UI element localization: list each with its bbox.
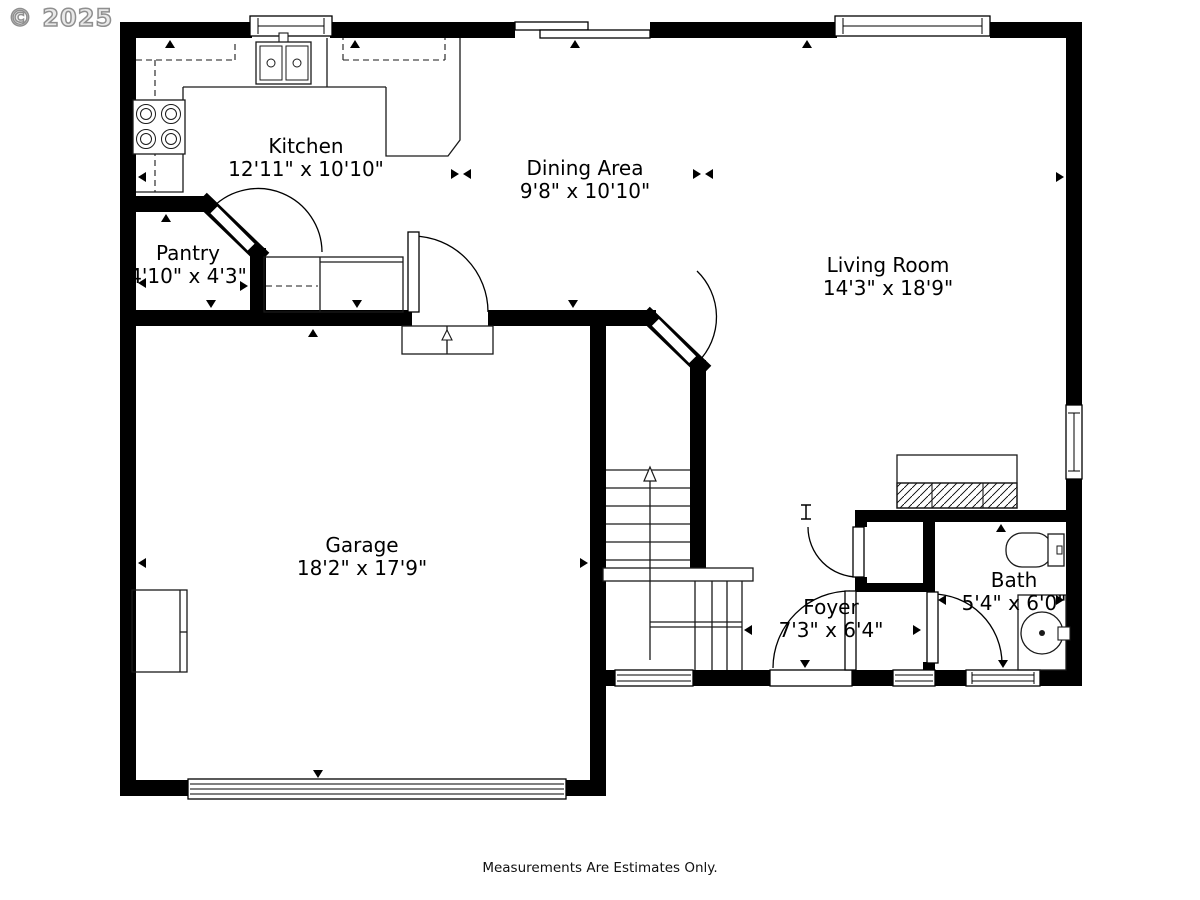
room-label-dining: Dining Area 9'8" x 10'10" [520, 157, 650, 203]
living-room-window [835, 16, 990, 36]
garage-step [402, 326, 493, 354]
right-wall-window [1066, 405, 1082, 479]
room-name: Dining Area [520, 157, 650, 180]
room-label-foyer: Foyer 7'3" x 6'4" [779, 596, 884, 642]
room-name: Pantry [129, 242, 247, 265]
bath-window [966, 670, 1040, 686]
water-heater-icon [132, 590, 187, 672]
garage-door [188, 779, 566, 799]
copyright-watermark: © 2025 [8, 4, 113, 32]
closet-door [808, 527, 864, 577]
ibeam-tick [801, 505, 811, 519]
floor-plan-drawing [0, 0, 1200, 900]
room-label-pantry: Pantry 4'10" x 4'3" [129, 242, 247, 288]
room-label-living: Living Room 14'3" x 18'9" [823, 254, 953, 300]
room-dimensions: 18'2" x 17'9" [297, 557, 427, 580]
stairwell-window [615, 670, 693, 686]
room-dimensions: 9'8" x 10'10" [520, 180, 650, 203]
room-name: Garage [297, 534, 427, 557]
tall-cabinet [386, 38, 460, 156]
staircase [603, 467, 753, 670]
kitchen-garage-door [408, 232, 488, 312]
floor-plan-page: © 2025 Kitchen 12'11" x 10'10" Dining Ar… [0, 0, 1200, 900]
room-dimensions: 7'3" x 6'4" [779, 619, 884, 642]
disclaimer-text: Measurements Are Estimates Only. [482, 860, 717, 876]
kitchen-window [250, 16, 332, 36]
room-name: Living Room [823, 254, 953, 277]
room-dimensions: 12'11" x 10'10" [228, 158, 384, 181]
room-name: Kitchen [228, 135, 384, 158]
kitchen-sink-icon [256, 33, 311, 84]
room-name: Foyer [779, 596, 884, 619]
room-dimensions: 14'3" x 18'9" [823, 277, 953, 300]
room-label-bath: Bath 5'4" x 6'0" [962, 569, 1067, 615]
front-door-threshold [770, 670, 852, 686]
stove-icon [133, 100, 185, 154]
closet-shelves-icon [897, 455, 1017, 508]
room-dimensions: 4'10" x 4'3" [129, 265, 247, 288]
room-label-garage: Garage 18'2" x 17'9" [297, 534, 427, 580]
sliding-door [515, 22, 650, 38]
room-name: Bath [962, 569, 1067, 592]
stairs-up-arrow-icon [644, 467, 656, 481]
toilet-icon [1006, 533, 1064, 567]
room-dimensions: 5'4" x 6'0" [962, 592, 1067, 615]
lower-cabinet [264, 257, 403, 312]
foyer-window [893, 670, 935, 686]
room-label-kitchen: Kitchen 12'11" x 10'10" [228, 135, 384, 181]
